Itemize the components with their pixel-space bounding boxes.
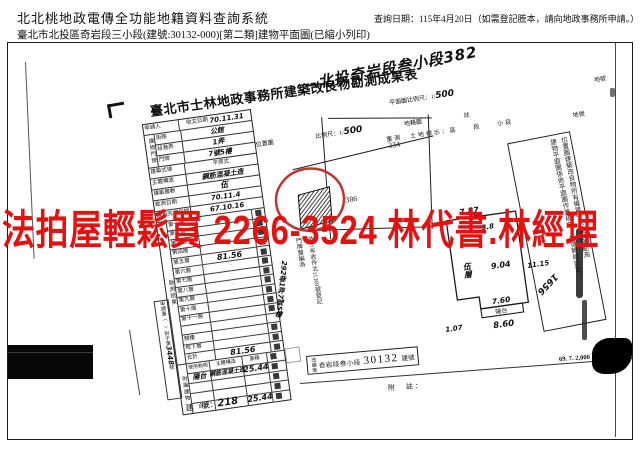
parcel-no-label: 地號: [572, 109, 585, 120]
redaction-bar-line: [8, 352, 93, 353]
seal-stamp-icon: [271, 363, 278, 370]
parcel-no-label: 地號: [593, 73, 606, 84]
page-subtitle: 臺北市北投區奇岩段三小段(建號:30132-000)[第二類]建物平面圖(已縮小…: [17, 27, 370, 42]
seal-stamp-icon: [273, 373, 280, 380]
map-header-position: 位置圖: [255, 137, 274, 149]
dim-bottom: 8.60: [493, 318, 515, 331]
map-header-note: 註: [463, 110, 470, 121]
attach-total-handwritten: 25.44: [248, 393, 274, 405]
resurvey-columns: 區 段 小段: [449, 120, 513, 135]
plan-scale-value-handwritten: 500: [435, 89, 455, 102]
parcel-334-label: 334: [388, 140, 401, 151]
note-box-handwritten: 1656: [533, 269, 560, 297]
renumber-stamp-suffix: 建號: [401, 351, 415, 362]
application-book-label: 申請書（ ）附于第: [158, 301, 170, 346]
received-date-label: 收文日期: [186, 118, 209, 127]
floor-label-handwritten: 伍層: [460, 262, 473, 279]
seal-stamp-icon: [274, 383, 281, 390]
seal-stamp-icon: [270, 353, 277, 360]
system-title: 北北桃地政電傳全功能地籍資料查詢系統: [17, 8, 269, 27]
seal-stamp-icon: [276, 393, 283, 400]
redaction-bar: [8, 345, 93, 379]
page: 北北桃地政電傳全功能地籍資料查詢系統 查詢日期：115年4月20日（如需登記謄本…: [0, 0, 640, 450]
dim-left: 1.07: [445, 324, 463, 334]
dim-mid: 9.04: [490, 259, 511, 271]
renumber-stamp-section: 奇岩段叁小段: [318, 356, 361, 370]
renumber-stamp-number: 30132: [363, 351, 399, 366]
door-stamp-handwritten: 292巷1弄7號5樓: [271, 260, 291, 318]
application-book-suffix: 號: [167, 365, 173, 371]
application-book-no-handwritten: 3448: [164, 345, 174, 365]
scan-blob-artifact: [582, 300, 587, 340]
scan-blob-artifact: [610, 88, 615, 97]
red-watermark-text: 法拍屋輕鬆買 2266-3524 林代書.林經理: [2, 196, 599, 256]
renumber-stamp-prefix: 改編後: [310, 357, 316, 372]
balcony-label: 陽台: [495, 306, 508, 316]
query-date: 查詢日期：115年4月20日（如需登記謄本，請向地政事務所申請。）: [374, 12, 639, 25]
